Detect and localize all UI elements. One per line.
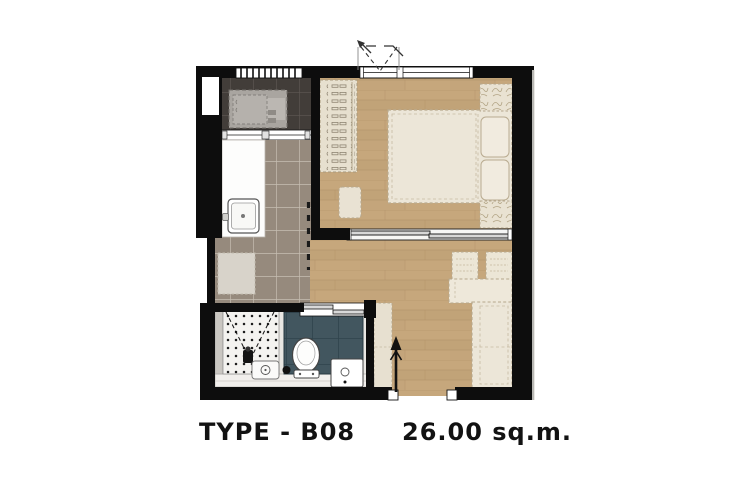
floor-drain-icon [283,366,291,374]
bedside-plant [480,84,512,111]
pillow [481,160,509,200]
bedroom-mat [339,187,361,218]
bedroom-sliding-door [347,229,512,240]
dining-stool [486,252,512,280]
dining-table [449,279,512,303]
louver-window [236,68,302,78]
sink-icon [223,199,260,233]
wardrobe [320,80,357,172]
sofa [472,302,512,388]
balcony-window [220,130,313,140]
unit-type-label: TYPE - B08 [199,418,355,446]
dining-stool [452,252,478,280]
wall-edge-highlight [532,70,535,400]
kitchen-rug [218,253,255,294]
shoe-cabinet [374,303,392,389]
bathroom-sliding-door [300,303,366,316]
unit-area-label: 26.00 sq.m. [402,418,572,446]
bed [388,110,512,203]
bathroom [215,303,374,390]
floor-drain-icon [252,361,279,379]
washing-machine-icon [229,90,287,128]
floor-plan-page: TYPE - B08 26.00 sq.m. [0,0,750,500]
vanity-sink-icon [331,359,363,387]
caption: TYPE - B08 26.00 sq.m. [0,418,750,458]
balcony [220,78,313,140]
bedside-plant [480,201,512,228]
bedroom [320,78,512,229]
bedroom-window [360,67,473,78]
shaft [202,77,219,115]
kitchen [215,140,311,303]
toilet-icon [293,338,320,378]
pillow [481,117,509,157]
